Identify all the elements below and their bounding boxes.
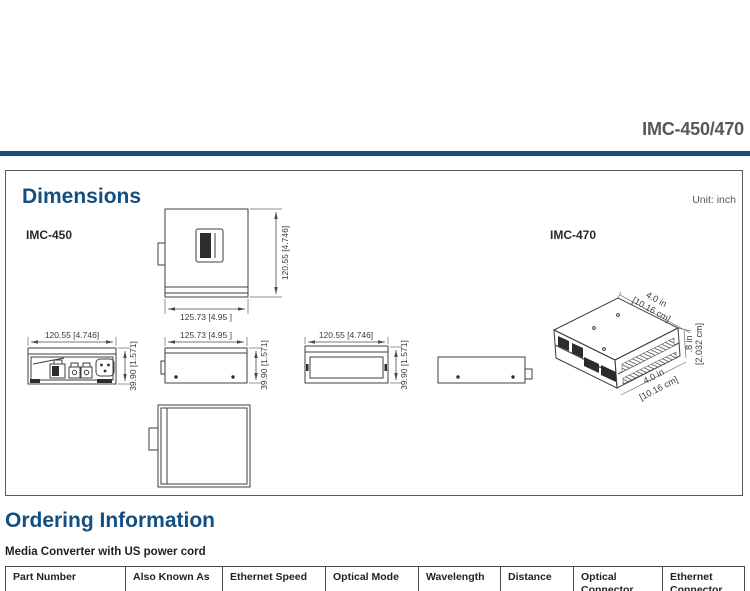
column-header-ethernet-speed: Ethernet Speed (223, 567, 326, 591)
column-header-ethernet-connector: Ethernet Connector (663, 567, 745, 591)
dimensions-heading: Dimensions (22, 185, 141, 209)
model-label-imc470: IMC-470 (550, 228, 596, 242)
column-header-also-known-as: Also Known As (126, 567, 223, 591)
unit-label: Unit: inch (692, 194, 736, 206)
page-title: IMC-450/470 (642, 119, 744, 140)
model-label-imc450: IMC-450 (26, 228, 72, 242)
header-rule (0, 151, 750, 156)
ordering-heading: Ordering Information (5, 509, 215, 533)
column-header-optical-mode: Optical Mode (326, 567, 419, 591)
ordering-table: Part Number Also Known As Ethernet Speed… (5, 566, 745, 591)
column-header-wavelength: Wavelength (419, 567, 501, 591)
column-header-part-number: Part Number (6, 567, 126, 591)
column-header-optical-connector: Optical Connector (574, 567, 663, 591)
page: IMC-450/470 Dimensions Unit: inch IMC-45… (0, 0, 750, 591)
table-header-row: Part Number Also Known As Ethernet Speed… (6, 567, 745, 591)
column-header-distance: Distance (501, 567, 574, 591)
ordering-subheading: Media Converter with US power cord (5, 546, 206, 558)
dimensions-panel (5, 170, 743, 496)
